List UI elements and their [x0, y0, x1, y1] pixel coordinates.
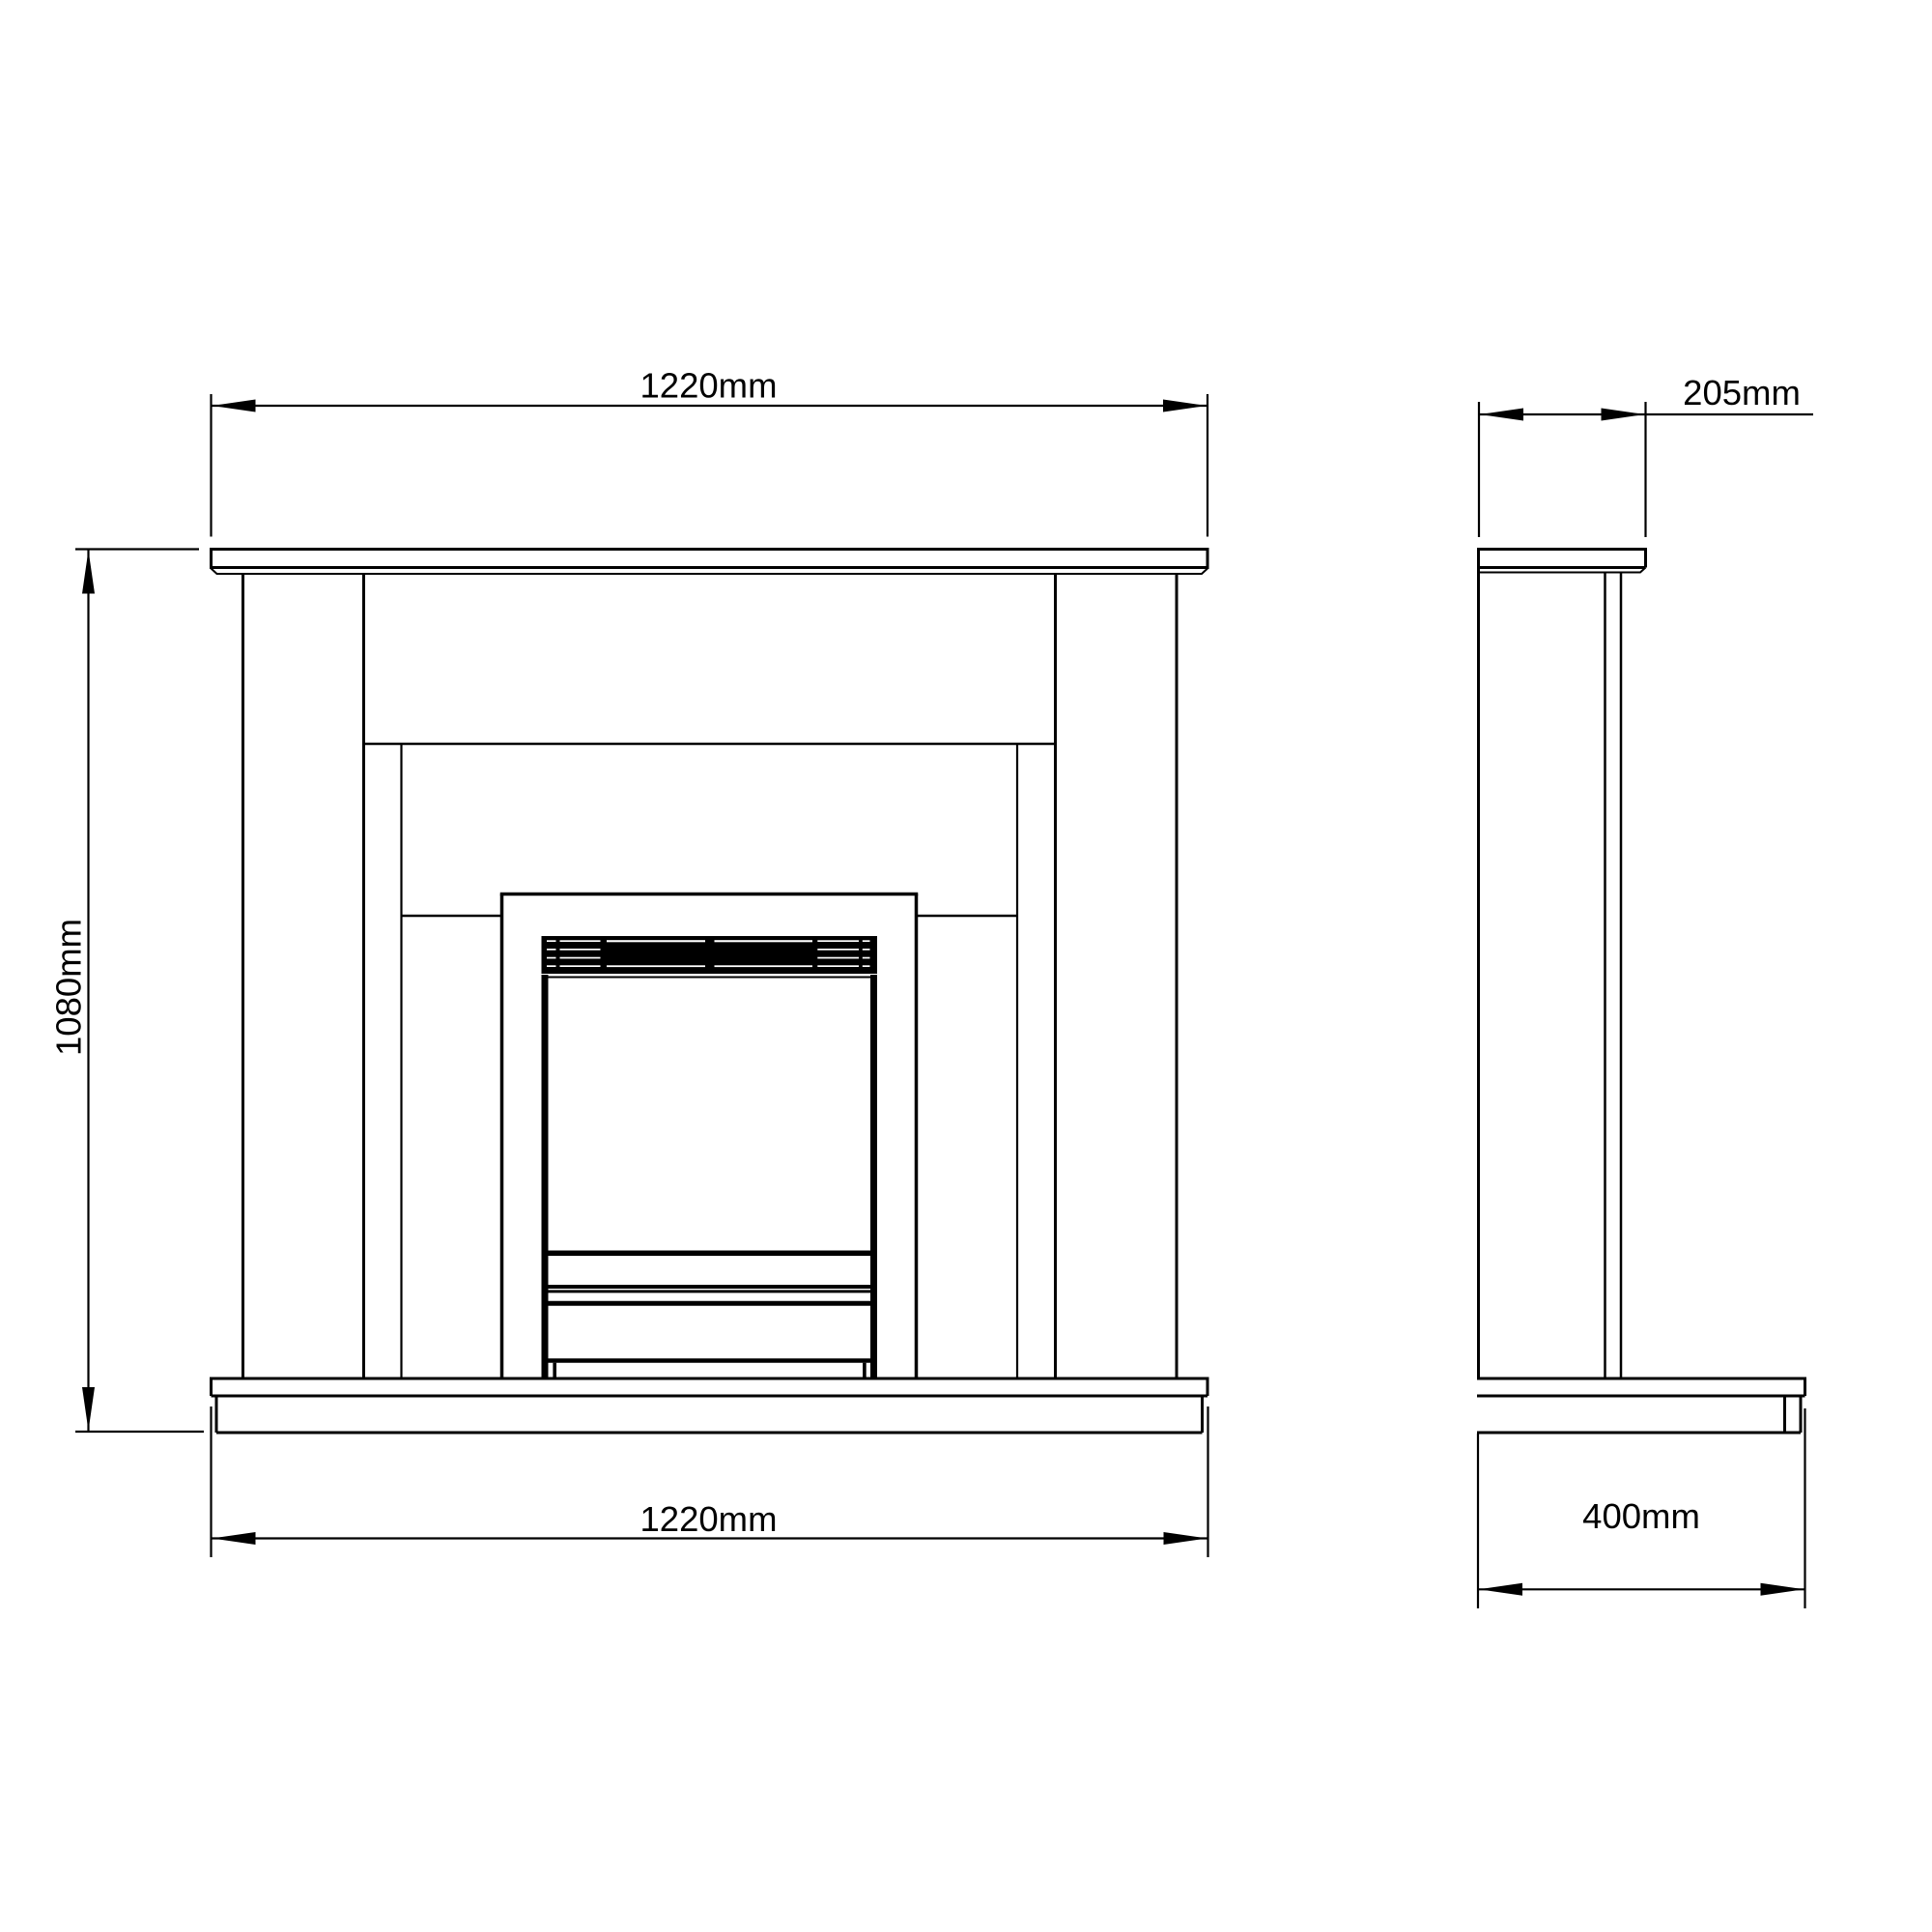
svg-text:205mm: 205mm	[1683, 373, 1801, 412]
svg-text:400mm: 400mm	[1582, 1496, 1700, 1536]
svg-text:1080mm: 1080mm	[49, 919, 89, 1056]
svg-text:1220mm: 1220mm	[639, 366, 777, 406]
svg-text:1220mm: 1220mm	[639, 1499, 777, 1539]
